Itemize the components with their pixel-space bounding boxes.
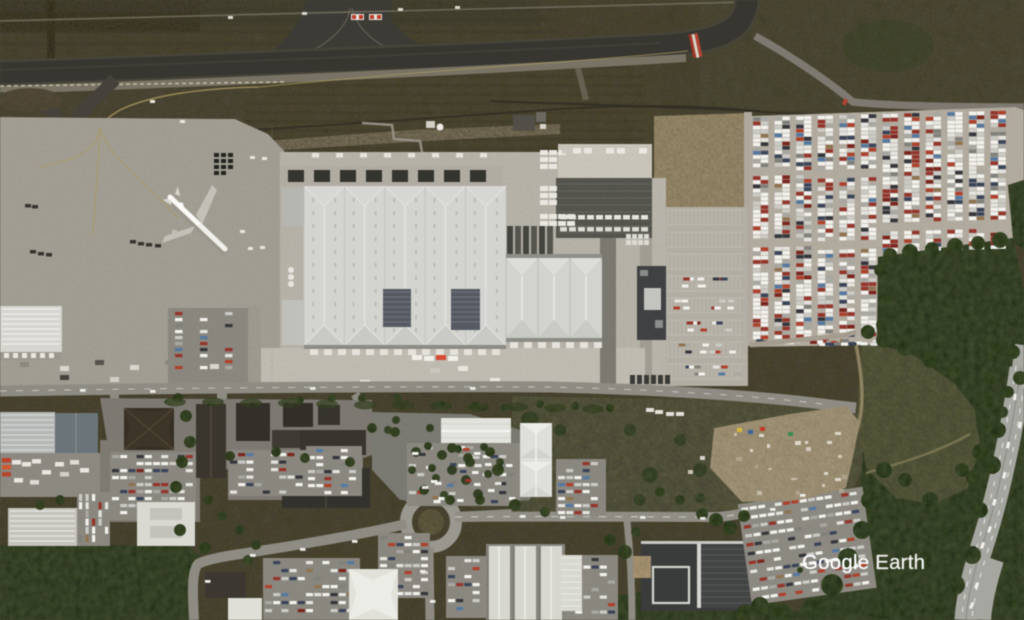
- svg-text:Google Earth: Google Earth: [802, 551, 925, 574]
